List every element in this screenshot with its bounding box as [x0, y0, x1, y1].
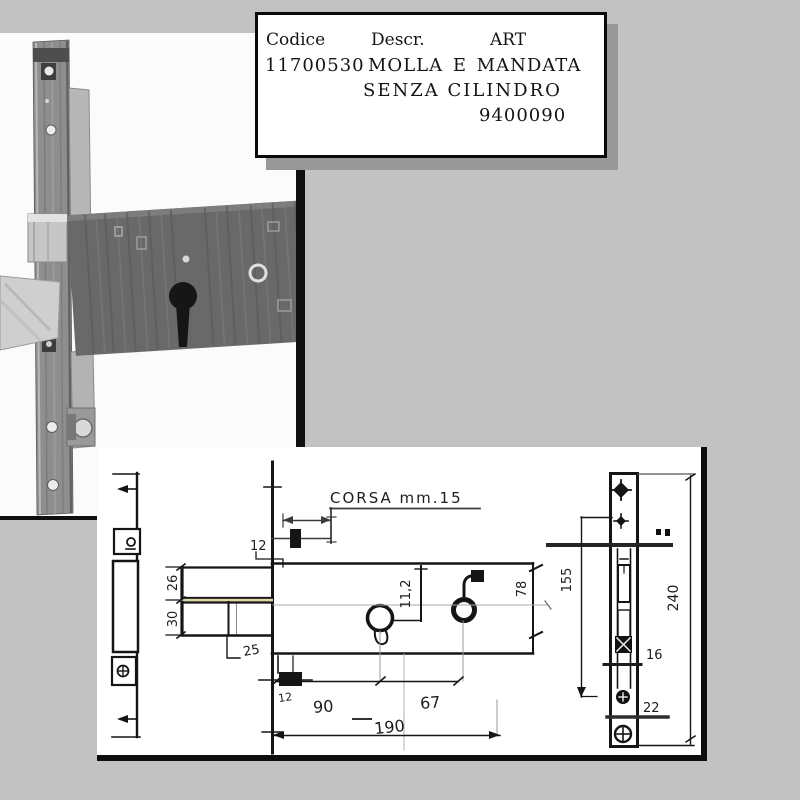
corsa-callout [272, 508, 480, 548]
photo-bottom-border [0, 516, 98, 520]
dim-label-12-top: 12 [250, 539, 267, 554]
photo-right-border [296, 168, 305, 447]
dim-label-26: 26 [166, 575, 181, 592]
technical-drawing: CORSA mm.15 12 26 30 25 11,2 [97, 447, 701, 755]
dim-label-12-bottom: 12 [277, 690, 293, 705]
auxiliary-latch [67, 408, 95, 446]
dim-label-25: 25 [242, 642, 261, 660]
dim-label-30: 30 [166, 611, 181, 628]
label-header-descr: Descr. [371, 30, 425, 50]
dim-label-155: 155 [560, 568, 575, 593]
dim-label-78: 78 [515, 581, 530, 598]
catalog-scan-page: CORSA mm.15 12 26 30 25 11,2 [0, 0, 800, 800]
product-label-card: Codice Descr. ART 11700530 MOLLA E MANDA… [255, 12, 607, 158]
dim-label-11-2: 11,2 [399, 580, 414, 609]
dim-label-67: 67 [419, 692, 441, 712]
deadbolt [0, 276, 60, 350]
label-descr-line2: SENZA CILINDRO [363, 80, 562, 101]
edge-view [112, 473, 140, 737]
dim-label-90: 90 [312, 696, 334, 716]
label-descr-line1: MOLLA E MANDATA [368, 55, 581, 76]
label-code-value: 11700530 [265, 55, 365, 76]
label-header-art: ART [490, 30, 526, 50]
label-header-codice: Codice [266, 30, 325, 50]
label-art-value: 9400090 [479, 105, 566, 126]
dim-label-190: 190 [373, 716, 405, 738]
technical-drawing-panel: CORSA mm.15 12 26 30 25 11,2 [97, 447, 707, 761]
dim-label-240: 240 [666, 585, 682, 612]
dim-label-22: 22 [643, 701, 660, 716]
dim-label-16: 16 [646, 648, 663, 663]
dim-label-corsa: CORSA mm.15 [330, 489, 463, 507]
latch-bolt [28, 214, 67, 262]
